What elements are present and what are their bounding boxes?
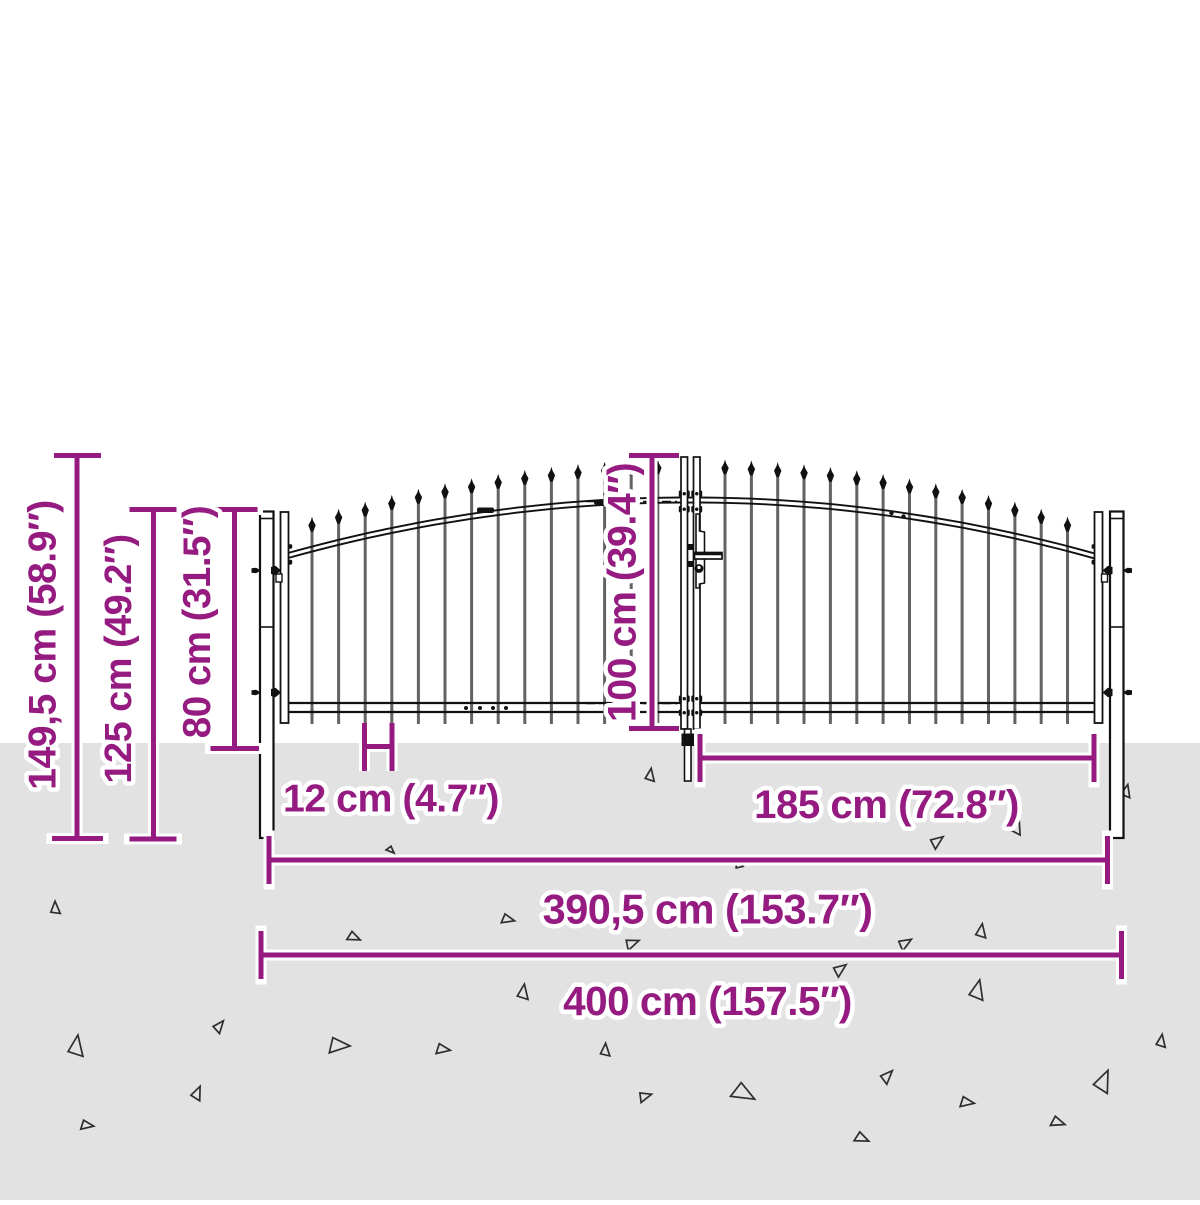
svg-text:80 cm (31.5″): 80 cm (31.5″) [176,506,219,738]
svg-text:185 cm (72.8″): 185 cm (72.8″) [754,782,1019,827]
svg-text:12 cm (4.7″): 12 cm (4.7″) [283,777,499,821]
svg-text:100 cm (39.4″): 100 cm (39.4″) [601,463,645,722]
svg-text:400 cm (157.5″): 400 cm (157.5″) [563,978,852,1024]
svg-text:149,5 cm (58.9″): 149,5 cm (58.9″) [22,500,65,790]
svg-text:125 cm (49.2″): 125 cm (49.2″) [98,534,140,783]
svg-text:390,5 cm (153.7″): 390,5 cm (153.7″) [543,885,873,932]
